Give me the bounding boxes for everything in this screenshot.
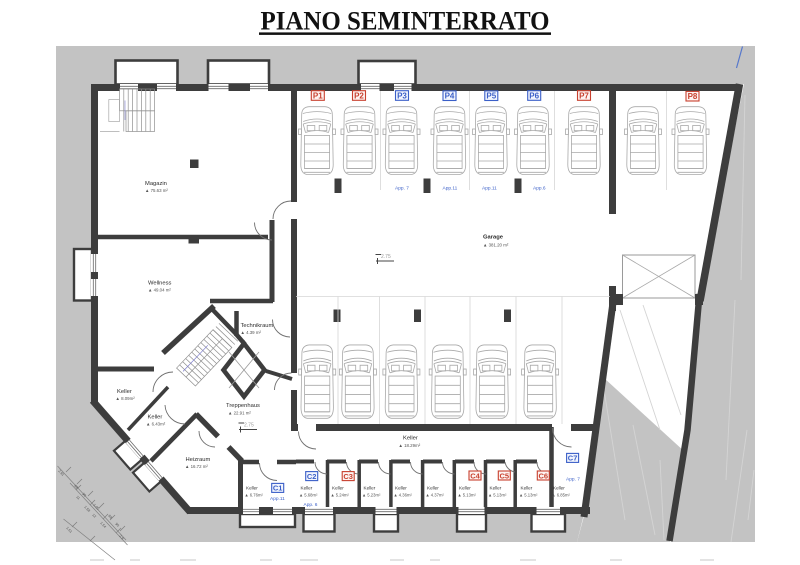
svg-text:Keller: Keller	[148, 415, 163, 421]
svg-text:P5: P5	[486, 92, 496, 101]
svg-text:▲ 75.63 m²: ▲ 75.63 m²	[145, 188, 168, 193]
svg-text:Keller: Keller	[553, 486, 565, 491]
svg-text:2.75: 2.75	[244, 423, 254, 429]
svg-text:▲ 381.20 m²: ▲ 381.20 m²	[483, 243, 509, 248]
svg-text:Keller: Keller	[364, 486, 376, 491]
svg-text:▲ 6.76m²: ▲ 6.76m²	[245, 493, 264, 498]
svg-text:Keller: Keller	[403, 436, 418, 442]
svg-text:▲ 22.91 m²: ▲ 22.91 m²	[228, 411, 251, 416]
svg-text:P6: P6	[529, 92, 539, 101]
svg-text:App.11: App.11	[270, 496, 285, 502]
svg-text:P2: P2	[354, 92, 364, 101]
svg-text:2.75: 2.75	[381, 254, 391, 260]
svg-text:▲ 5.68m²: ▲ 5.68m²	[299, 493, 318, 498]
svg-text:App.11: App.11	[443, 186, 458, 192]
svg-text:▲ 16.72 m²: ▲ 16.72 m²	[185, 464, 208, 469]
svg-text:Keller: Keller	[459, 486, 471, 491]
svg-text:▲ 4.39 m²: ▲ 4.39 m²	[241, 330, 262, 335]
svg-text:Keller: Keller	[395, 486, 407, 491]
svg-text:Keller: Keller	[490, 486, 502, 491]
svg-text:Garage: Garage	[483, 235, 504, 241]
svg-text:App.11: App.11	[482, 186, 497, 192]
svg-text:C1: C1	[273, 484, 283, 493]
svg-text:Keller: Keller	[301, 486, 313, 491]
svg-text:C4: C4	[470, 471, 480, 480]
svg-text:▲ 6.43m²: ▲ 6.43m²	[146, 422, 166, 427]
svg-text:▲ 5.13m²: ▲ 5.13m²	[488, 493, 507, 498]
svg-text:P1: P1	[313, 92, 323, 101]
svg-text:Heizraum: Heizraum	[186, 457, 211, 463]
svg-text:C7: C7	[568, 454, 578, 463]
svg-text:▲ 4.37m²: ▲ 4.37m²	[426, 493, 445, 498]
svg-text:P8: P8	[688, 92, 698, 101]
svg-text:P4: P4	[445, 92, 455, 101]
svg-text:C2: C2	[307, 472, 317, 481]
svg-text:App. 7: App. 7	[395, 186, 409, 192]
svg-text:▲ 6.85m²: ▲ 6.85m²	[552, 493, 571, 498]
svg-text:C6: C6	[539, 471, 549, 480]
svg-text:▲ 49.04 m²: ▲ 49.04 m²	[148, 288, 171, 293]
svg-text:Magazin: Magazin	[145, 181, 167, 187]
svg-text:Technikraum: Technikraum	[241, 323, 274, 329]
svg-text:Treppenhaus: Treppenhaus	[226, 403, 260, 409]
svg-text:▲ 5.23m²: ▲ 5.23m²	[362, 493, 381, 498]
svg-text:PIANO SEMINTERRATO: PIANO SEMINTERRATO	[261, 6, 550, 36]
svg-text:Wellness: Wellness	[148, 281, 172, 287]
svg-text:P3: P3	[397, 92, 407, 101]
svg-text:C3: C3	[343, 472, 353, 481]
svg-text:Keller: Keller	[246, 486, 258, 491]
svg-text:App.6: App.6	[533, 186, 546, 192]
svg-text:▲ 5.24m²: ▲ 5.24m²	[331, 493, 350, 498]
svg-text:▲ 5.13m²: ▲ 5.13m²	[519, 493, 538, 498]
svg-text:▲ 5.13m²: ▲ 5.13m²	[458, 493, 477, 498]
svg-text:Keller: Keller	[427, 486, 439, 491]
svg-text:Keller: Keller	[332, 486, 344, 491]
svg-text:▲ 18.29m²: ▲ 18.29m²	[399, 443, 421, 448]
svg-text:▲ 4.36m²: ▲ 4.36m²	[394, 493, 413, 498]
svg-text:Keller: Keller	[521, 486, 533, 491]
svg-text:Keller: Keller	[117, 389, 132, 395]
svg-text:App. 7: App. 7	[566, 477, 580, 483]
svg-text:P7: P7	[579, 92, 589, 101]
svg-text:App. 6: App. 6	[304, 502, 318, 508]
svg-text:▲ 8.09m²: ▲ 8.09m²	[116, 396, 136, 401]
svg-text:C5: C5	[500, 471, 510, 480]
